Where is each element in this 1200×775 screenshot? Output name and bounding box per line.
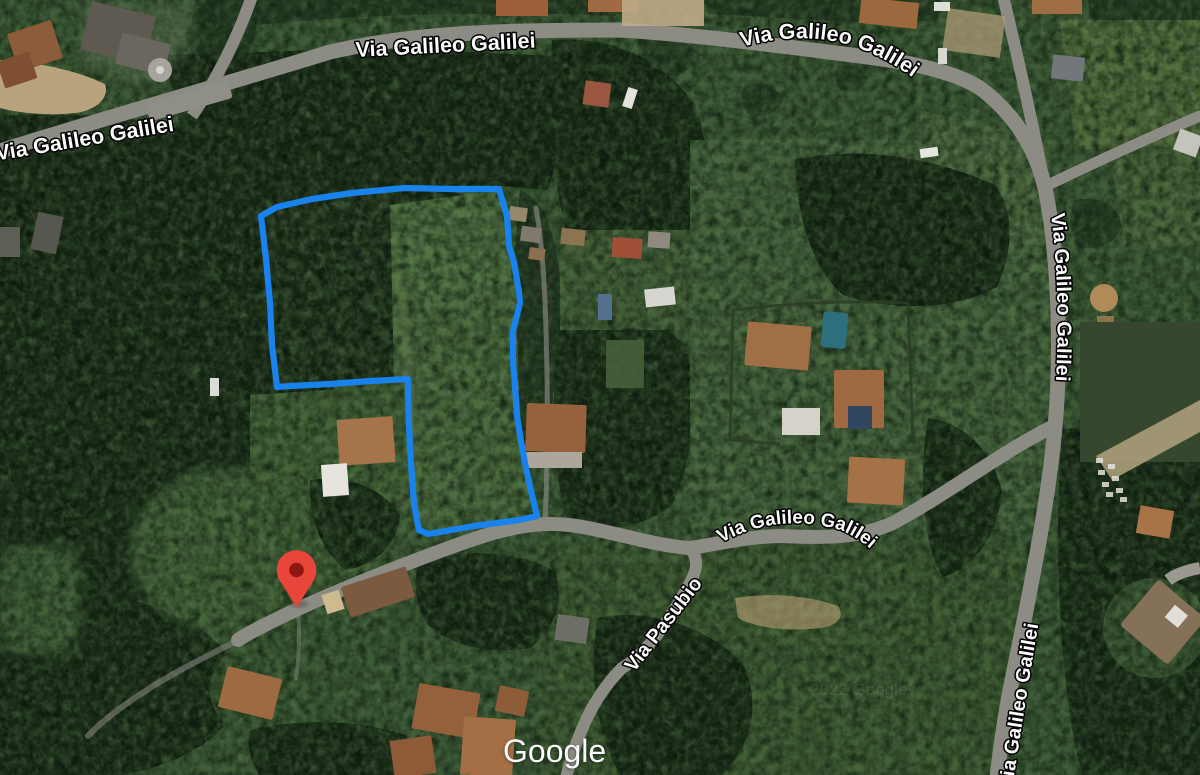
svg-text:2022 Google: 2022 Google <box>810 680 907 699</box>
svg-text:Google: Google <box>503 733 606 769</box>
